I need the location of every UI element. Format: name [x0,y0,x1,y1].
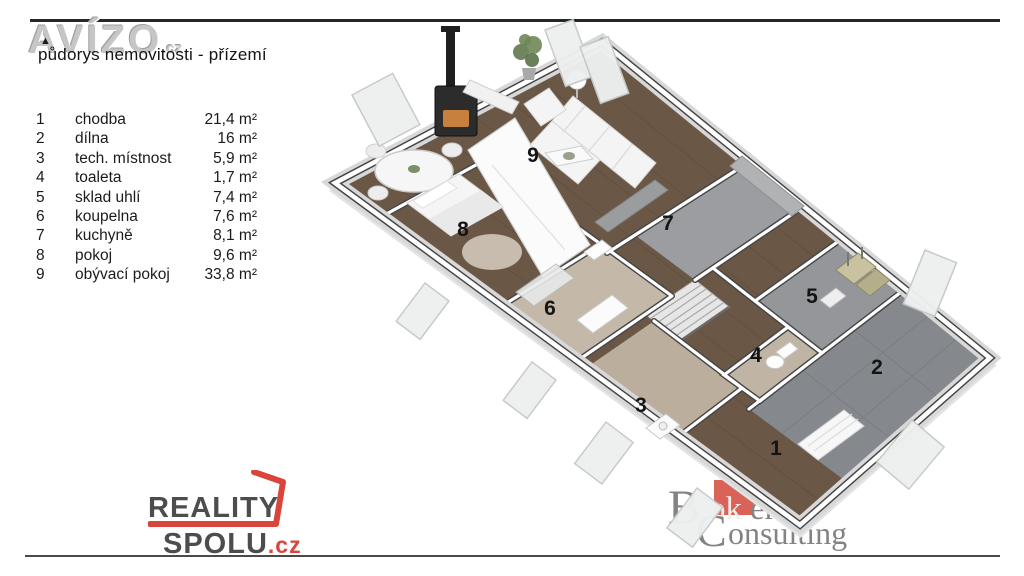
room-number-label-3: 3 [635,394,647,417]
room-number-label-4: 4 [750,344,762,367]
room-number-label-7: 7 [662,212,674,235]
floorplan-3d-render: 1 2 3 4 5 6 7 8 9 [0,0,1024,576]
door-icon [575,422,633,484]
room-number-label-2: 2 [871,356,883,379]
page: AVÍZO.cz ▲ půdorys nemovitosti - přízemí… [0,0,1024,576]
rug [462,234,522,270]
room-number-label-5: 5 [806,285,818,308]
room-number-label-8: 8 [457,218,469,241]
room-number-label-6: 6 [544,297,556,320]
room-number-label-9: 9 [527,144,539,167]
door-icon [396,283,449,339]
door-icon [667,488,723,547]
window-icon [503,362,556,418]
door-icon [903,250,956,317]
room-number-label-1: 1 [770,437,782,460]
